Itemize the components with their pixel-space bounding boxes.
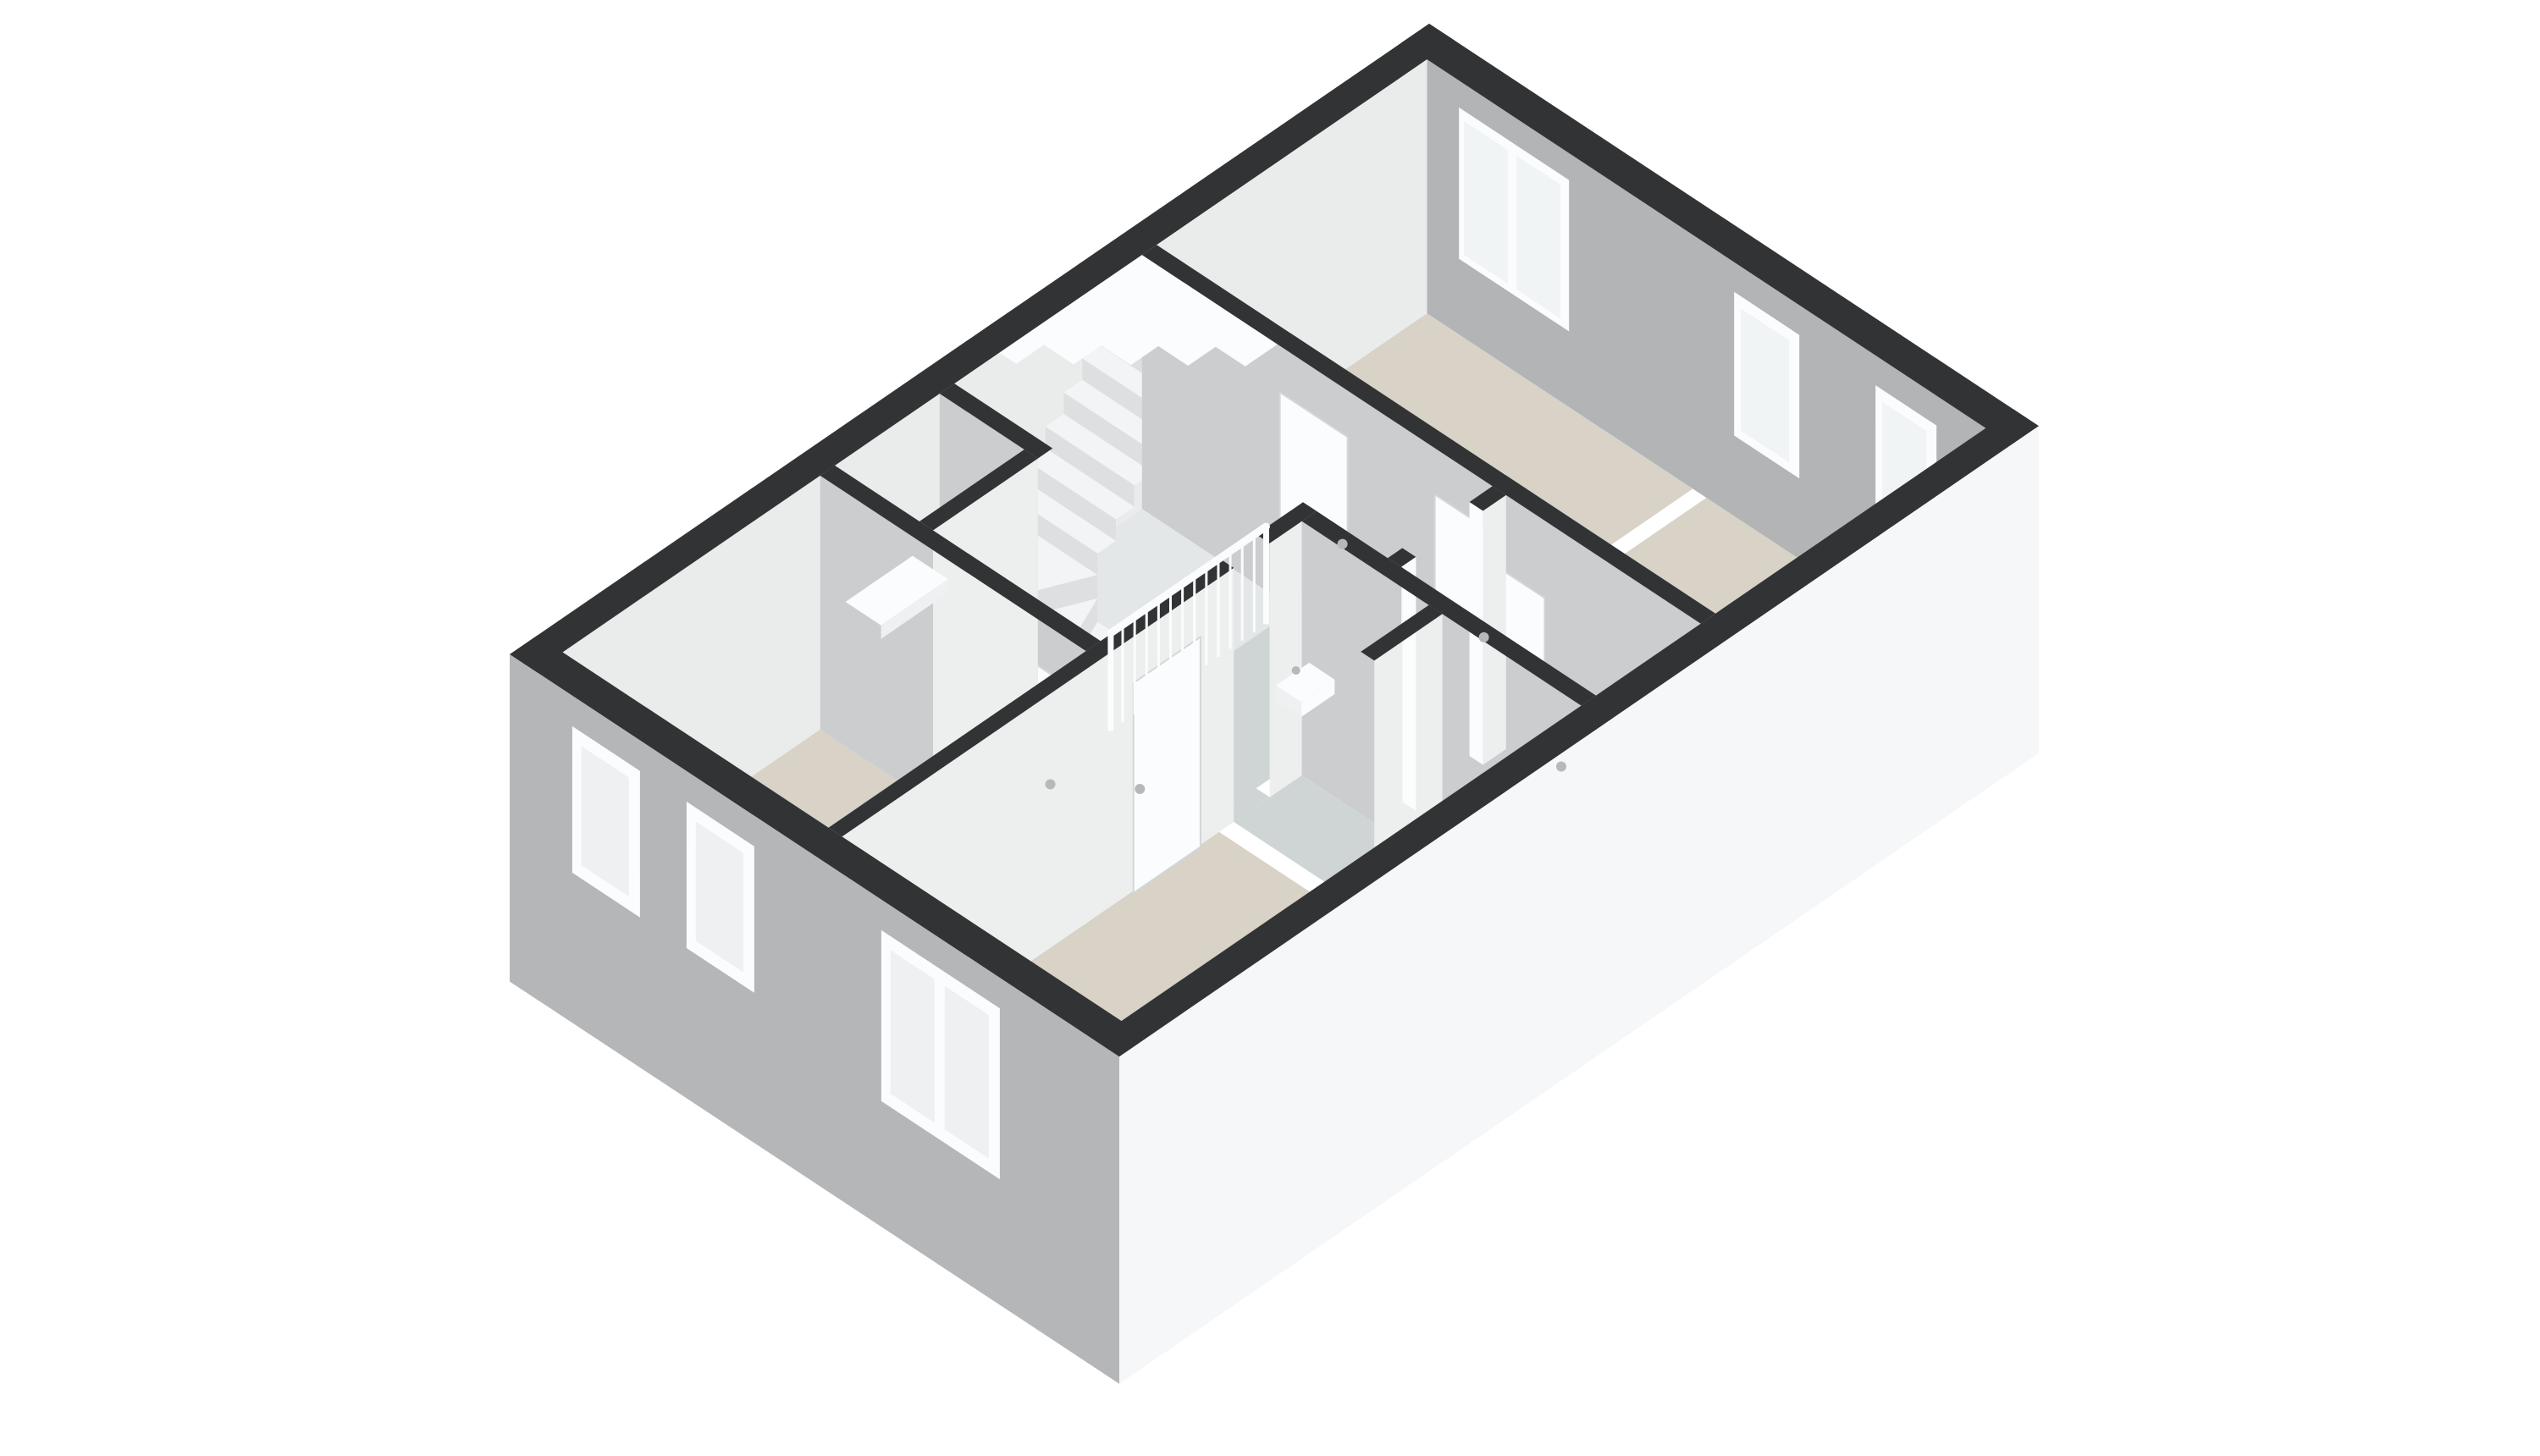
sw-window-3-glass-right <box>945 986 989 1159</box>
door-handle-left-bedroom <box>1046 780 1056 790</box>
bathtub-faucet <box>1556 762 1566 772</box>
door-handle-bottom-bedroom <box>1135 784 1145 794</box>
floorplan-3d-render <box>34 14 2540 1442</box>
door-handle-top-bedroom <box>1338 539 1348 549</box>
door-handle-right-bedroom <box>1479 632 1489 643</box>
sw-window-3-glass-left <box>891 950 935 1122</box>
floorplan-canvas <box>34 14 2540 1442</box>
sink-faucet <box>1292 666 1300 675</box>
door-bottom-bedroom <box>1134 637 1201 893</box>
